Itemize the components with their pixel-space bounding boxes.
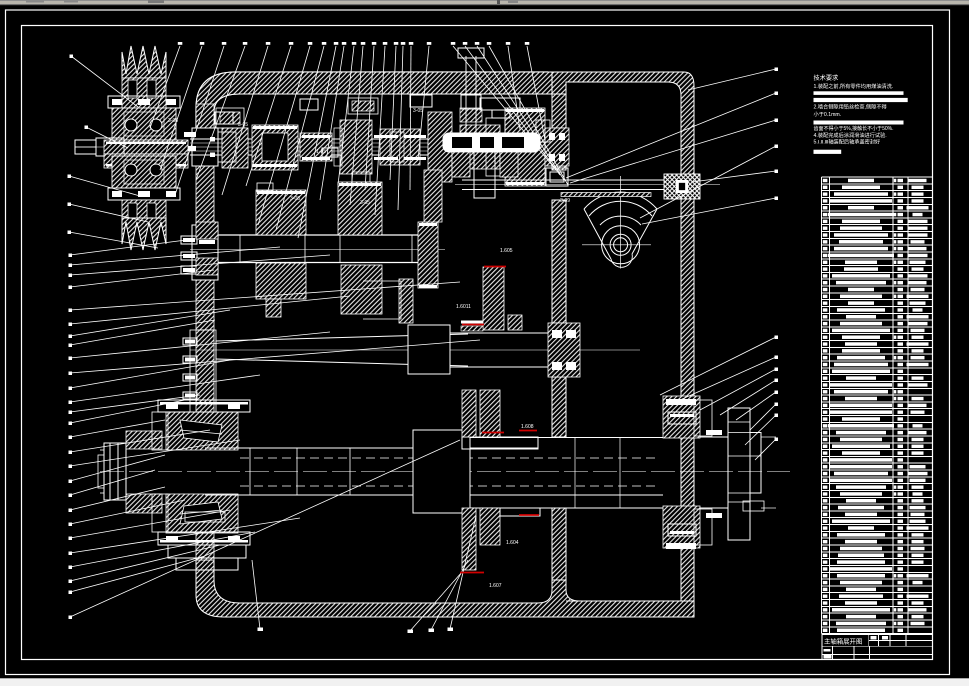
svg-text:1.607: 1.607 [489,583,502,589]
svg-text:1.605: 1.605 [500,248,513,254]
svg-text:1.608: 1.608 [521,424,534,430]
svg-text:3-05: 3-05 [360,200,370,206]
svg-text:3-05: 3-05 [168,118,178,124]
svg-text:3-09: 3-09 [560,198,570,204]
svg-text:主轴箱展开图: 主轴箱展开图 [824,637,862,646]
svg-text:3-05: 3-05 [413,108,423,114]
svg-text:小于0.1mm.: 小于0.1mm. [814,110,842,118]
svg-text:1-05: 1-05 [316,149,326,155]
svg-text:1.604: 1.604 [506,540,519,546]
svg-text:5.Ⅰ.Ⅱ.Ⅲ轴装配后轴承盖密封好: 5.Ⅰ.Ⅱ.Ⅲ轴装配后轴承盖密封好 [814,138,881,146]
svg-text:1.装配之前,所有零件均用煤油清洗.: 1.装配之前,所有零件均用煤油清洗. [814,82,894,90]
svg-text:齿面不得小于5%,接触长不小于50%.: 齿面不得小于5%,接触长不小于50%. [814,125,894,132]
svg-text:4.装配完成后涂润滑油进行试验.: 4.装配完成后涂润滑油进行试验. [814,131,887,139]
svg-text:2.啮合侧隙用铅丝检查,侧隙不得: 2.啮合侧隙用铅丝检查,侧隙不得 [814,103,887,111]
svg-text:3-05: 3-05 [238,122,248,128]
svg-text:技术要求: 技术要求 [814,74,839,82]
svg-text:3-08: 3-08 [290,196,300,202]
svg-text:1.6011: 1.6011 [456,304,471,310]
